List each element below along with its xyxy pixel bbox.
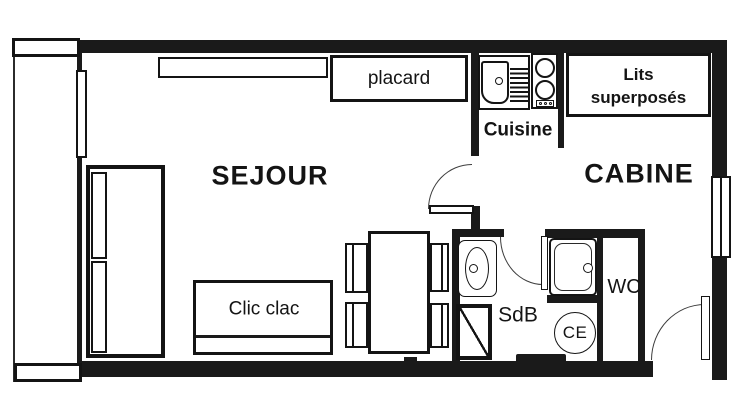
sink-drainboard (510, 68, 528, 103)
cuisine-label: Cuisine (484, 121, 553, 140)
sink-faucet-dot (495, 77, 503, 85)
water-heater-circle: CE (554, 312, 596, 354)
chair-top-right (430, 243, 449, 292)
kitchen-door-arc (428, 164, 472, 209)
floor-plan: placard Clic clac Lits superposés (0, 0, 752, 416)
wardrobe-door-bottom (91, 261, 107, 353)
balcony-rail-bottom (14, 363, 82, 382)
bunk-beds-label-line1: Lits (569, 63, 708, 86)
window-right-pane-line (720, 178, 722, 256)
shower-wc-wall (597, 229, 603, 363)
wall-top (80, 40, 727, 53)
wc-label: WC (607, 277, 640, 297)
wall-right-lower (712, 257, 727, 380)
window-left (76, 70, 87, 158)
stove-burner-bottom (535, 80, 555, 100)
chair-bottom-left (345, 302, 368, 348)
sdb-label: SdB (498, 305, 538, 326)
cabine-label: CABINE (584, 161, 694, 188)
balcony-rail-top (12, 38, 80, 57)
wall-bottom-bump (516, 354, 566, 363)
sejour-label: SEJOUR (211, 163, 328, 190)
chair-backrest-line (352, 245, 354, 291)
bunk-beds-label-line2: superposés (569, 86, 708, 109)
balcony-edge-line (13, 40, 15, 382)
wall-shelf (158, 57, 328, 78)
entry-door-leaf (701, 296, 710, 360)
water-heater-label: CE (563, 323, 588, 343)
kitchen-door-leaf (429, 205, 474, 214)
wardrobe-door-top (91, 172, 107, 259)
shower-drain-dot (583, 263, 593, 273)
clic-clac-divider (196, 335, 330, 338)
entry-door-arc (651, 304, 705, 360)
clic-clac-label: Clic clac (229, 300, 300, 319)
stove-burner-top (535, 58, 555, 78)
window-right (711, 176, 731, 258)
shower-front-wall (547, 295, 598, 303)
chair-backrest-line (352, 304, 354, 346)
diagonal-marked-fixture (456, 304, 492, 360)
placard-box: placard (330, 55, 468, 102)
wall-bottom (80, 361, 653, 377)
placard-label: placard (368, 68, 430, 90)
bathroom-wall-top-right (545, 229, 645, 238)
bathroom-door-leaf (541, 236, 548, 290)
wall-right-upper (712, 40, 727, 178)
chair-backrest-line (441, 305, 443, 346)
wall-bottom-tick (404, 357, 417, 362)
chair-backrest-line (441, 245, 443, 290)
bathroom-door-arc (500, 237, 543, 285)
chair-bottom-right (430, 303, 449, 348)
dining-table (368, 231, 430, 354)
kitchen-wall-right (558, 53, 564, 148)
bunk-beds-box: Lits superposés (566, 53, 711, 117)
washbasin-drain-dot (469, 264, 478, 273)
stove-controls (536, 100, 554, 107)
chair-top-left (345, 243, 368, 293)
